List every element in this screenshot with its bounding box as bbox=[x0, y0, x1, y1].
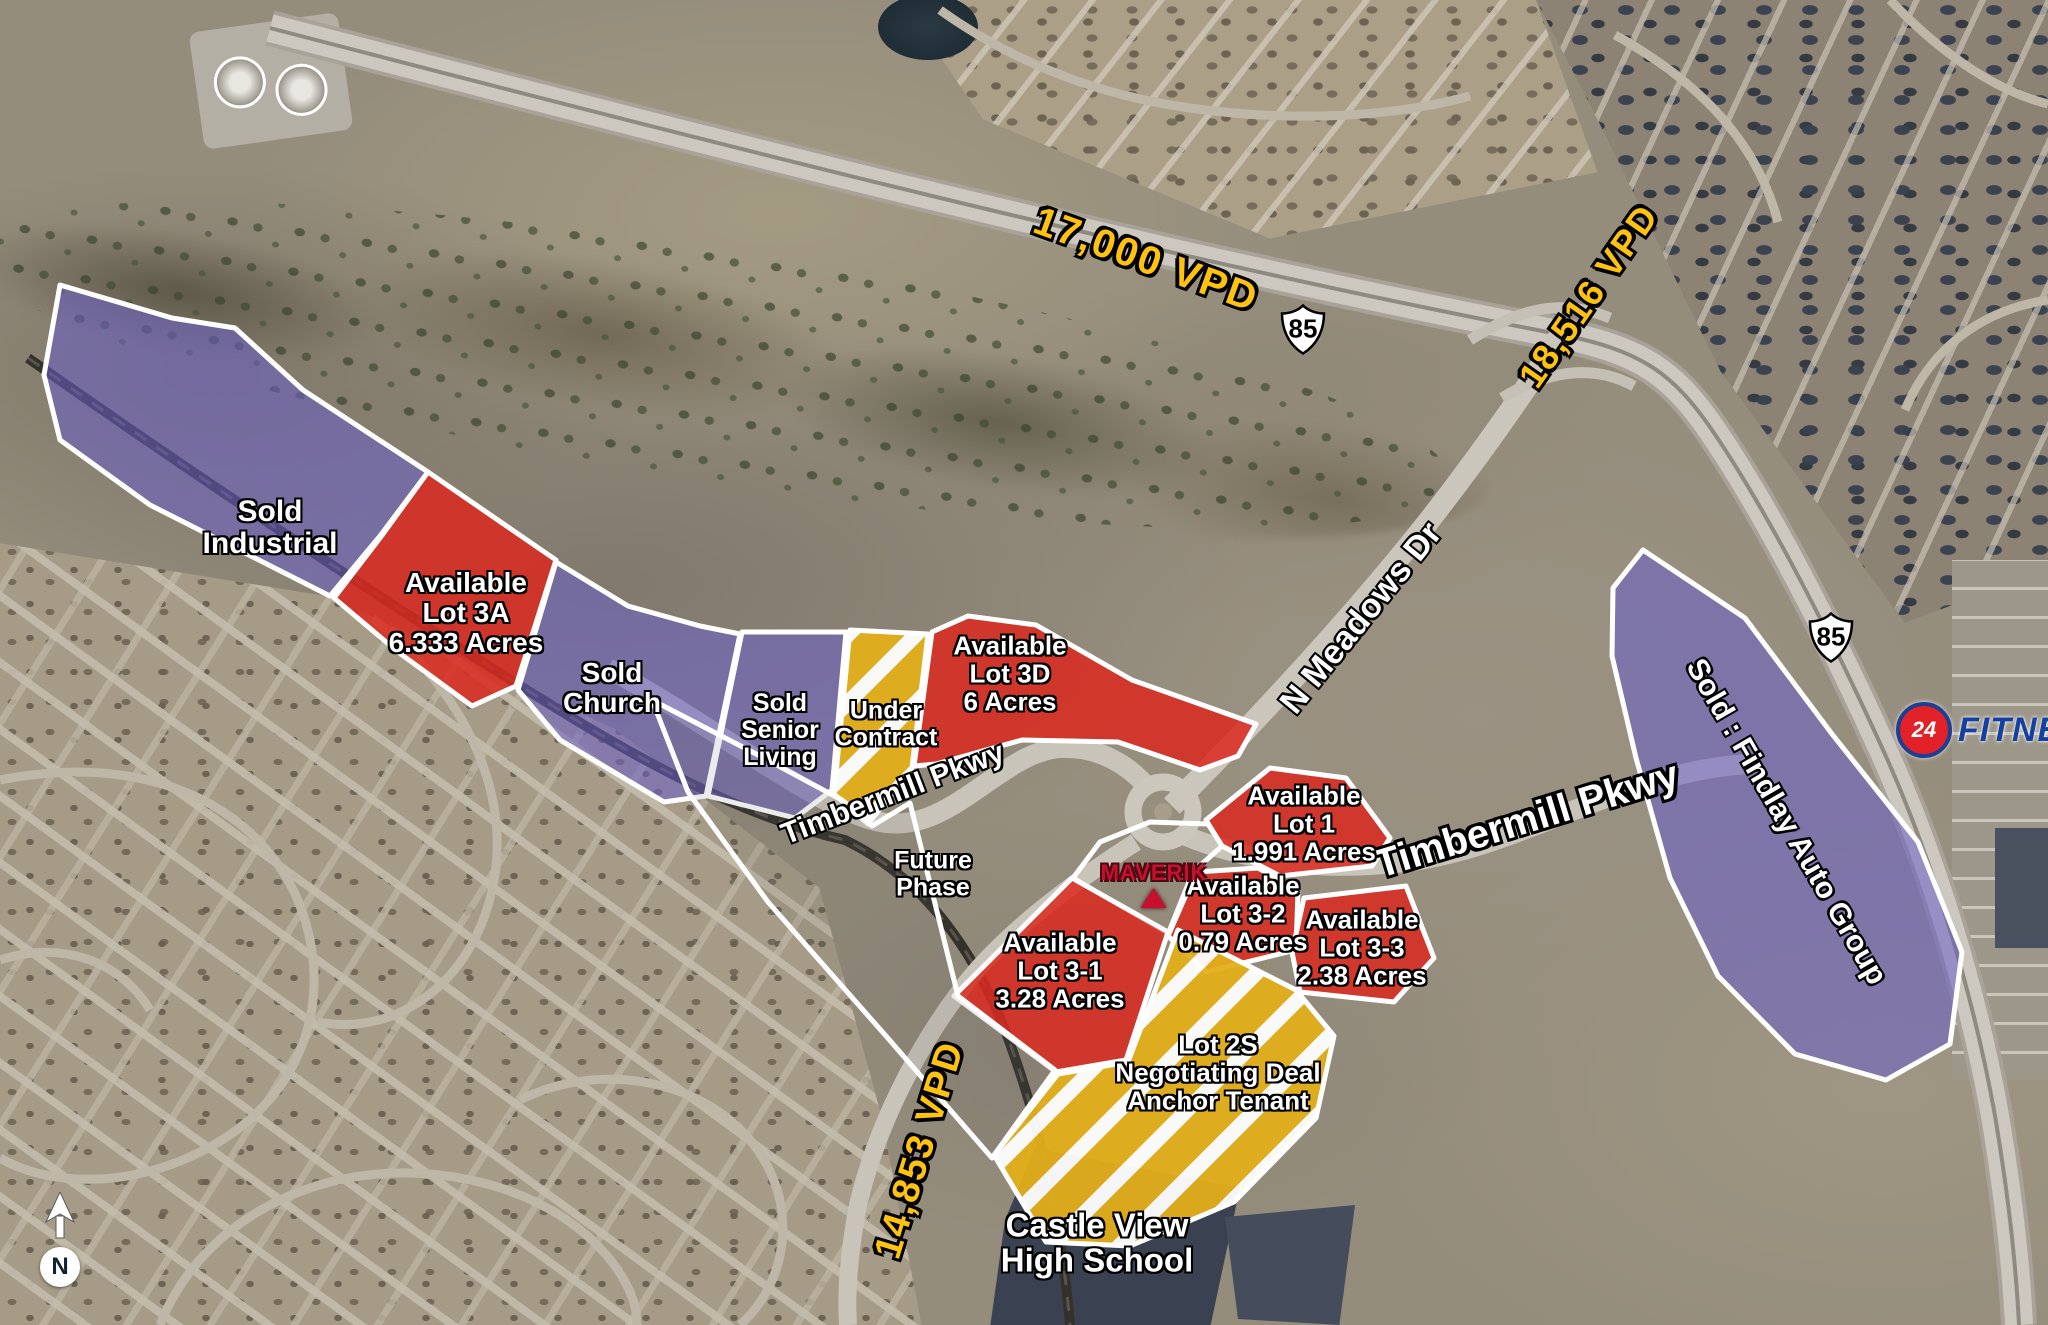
parcel-label-line: Lot 3-1 bbox=[1017, 955, 1102, 985]
parcel-label-line: 0.79 Acres bbox=[1178, 926, 1307, 956]
parcel-label-line: Available bbox=[1305, 904, 1418, 934]
school-label: Castle View High School bbox=[1001, 1208, 1194, 1279]
parcel-label-line: Anchor Tenant bbox=[1127, 1085, 1309, 1115]
north-arrow-icon bbox=[42, 1192, 78, 1240]
site-plan-map: 17,000 VPD 18,516 VPD 14,853 VPD 85 85 T… bbox=[0, 0, 2048, 1325]
parcel-label-line: Available bbox=[1003, 927, 1116, 957]
parcel-label-line: Lot 3-3 bbox=[1319, 932, 1404, 962]
route-number: 85 bbox=[1807, 622, 1855, 653]
parcel-label-sold-senior-living: Sold Senior Living bbox=[741, 690, 819, 770]
parcel-label-under-contract: Under Contract bbox=[835, 697, 938, 751]
school-label-line: High School bbox=[1001, 1242, 1194, 1279]
parcel-label-line: Available bbox=[405, 567, 527, 598]
maverik-mountain-icon bbox=[1141, 888, 1167, 908]
24-badge-icon: 24 bbox=[1896, 702, 1952, 758]
parcel-label-line: 2.38 Acres bbox=[1297, 960, 1426, 990]
parcel-label-sold-church: Sold Church bbox=[563, 658, 661, 718]
parcel-label-line: Lot 3A bbox=[422, 597, 509, 628]
parcel-label-line: 6 Acres bbox=[964, 686, 1057, 716]
parcel-label-line: Living bbox=[743, 742, 817, 770]
parcel-label-line: Phase bbox=[896, 873, 970, 901]
parcel-label-line: Under bbox=[850, 696, 922, 724]
us-85-shield: 85 bbox=[1807, 612, 1855, 669]
fitness-wordmark: FITNESS bbox=[1958, 711, 2048, 750]
parcel-label-line: Lot 1 bbox=[1273, 808, 1335, 838]
parcel-label-line: Contract bbox=[835, 723, 938, 751]
parcel-label-line: Lot 3-2 bbox=[1200, 898, 1285, 928]
maverik-wordmark: MAVERIK bbox=[1101, 860, 1208, 885]
north-letter: N bbox=[40, 1247, 80, 1287]
parcel-label-sold-industrial: Sold Industrial bbox=[202, 496, 337, 560]
north-compass: N bbox=[38, 1192, 82, 1287]
parcel-label-future-phase: Future Phase bbox=[894, 847, 972, 901]
parcel-label-line: 3.28 Acres bbox=[995, 983, 1124, 1013]
parcel-label-line: Negotiating Deal bbox=[1115, 1057, 1320, 1087]
route-number: 85 bbox=[1279, 314, 1327, 345]
parcel-label-line: Lot 3D bbox=[970, 658, 1051, 688]
us-85-shield: 85 bbox=[1279, 304, 1327, 361]
parcel-label-line: Sold bbox=[237, 495, 302, 528]
parcel-label-line: Sold bbox=[582, 657, 643, 688]
school-label-line: Castle View bbox=[1006, 1207, 1189, 1244]
parcel-label-lot-3-3: Available Lot 3-3 2.38 Acres bbox=[1297, 906, 1426, 989]
maverik-logo: MAVERIK bbox=[1101, 860, 1208, 908]
24-hour-fitness-logo: 24 FITNESS bbox=[1896, 702, 2048, 758]
parcel-label-lot-2s: Lot 2S Negotiating Deal Anchor Tenant bbox=[1115, 1031, 1320, 1114]
parcel-label-lot-3a: Available Lot 3A 6.333 Acres bbox=[389, 568, 544, 658]
roundabout-island bbox=[1154, 803, 1172, 821]
parcel-label-line: 1.991 Acres bbox=[1232, 836, 1376, 866]
parcel-label-line: Available bbox=[953, 630, 1066, 660]
parcel-label-line: Available bbox=[1247, 780, 1360, 810]
parcel-label-lot-1: Available Lot 1 1.991 Acres bbox=[1232, 782, 1376, 865]
parcel-label-line: Sold bbox=[753, 689, 807, 717]
parcel-label-line: Industrial bbox=[202, 527, 337, 560]
parcel-label-lot-3-1: Available Lot 3-1 3.28 Acres bbox=[995, 929, 1124, 1012]
parcel-label-line: Church bbox=[563, 687, 661, 718]
parcel-label-line: Future bbox=[894, 846, 972, 874]
parcel-label-line: Senior bbox=[741, 716, 819, 744]
parcel-label-lot-3d: Available Lot 3D 6 Acres bbox=[953, 632, 1066, 715]
parcel-label-line: Lot 2S bbox=[1178, 1029, 1257, 1059]
parcel-label-line: 6.333 Acres bbox=[389, 627, 544, 658]
